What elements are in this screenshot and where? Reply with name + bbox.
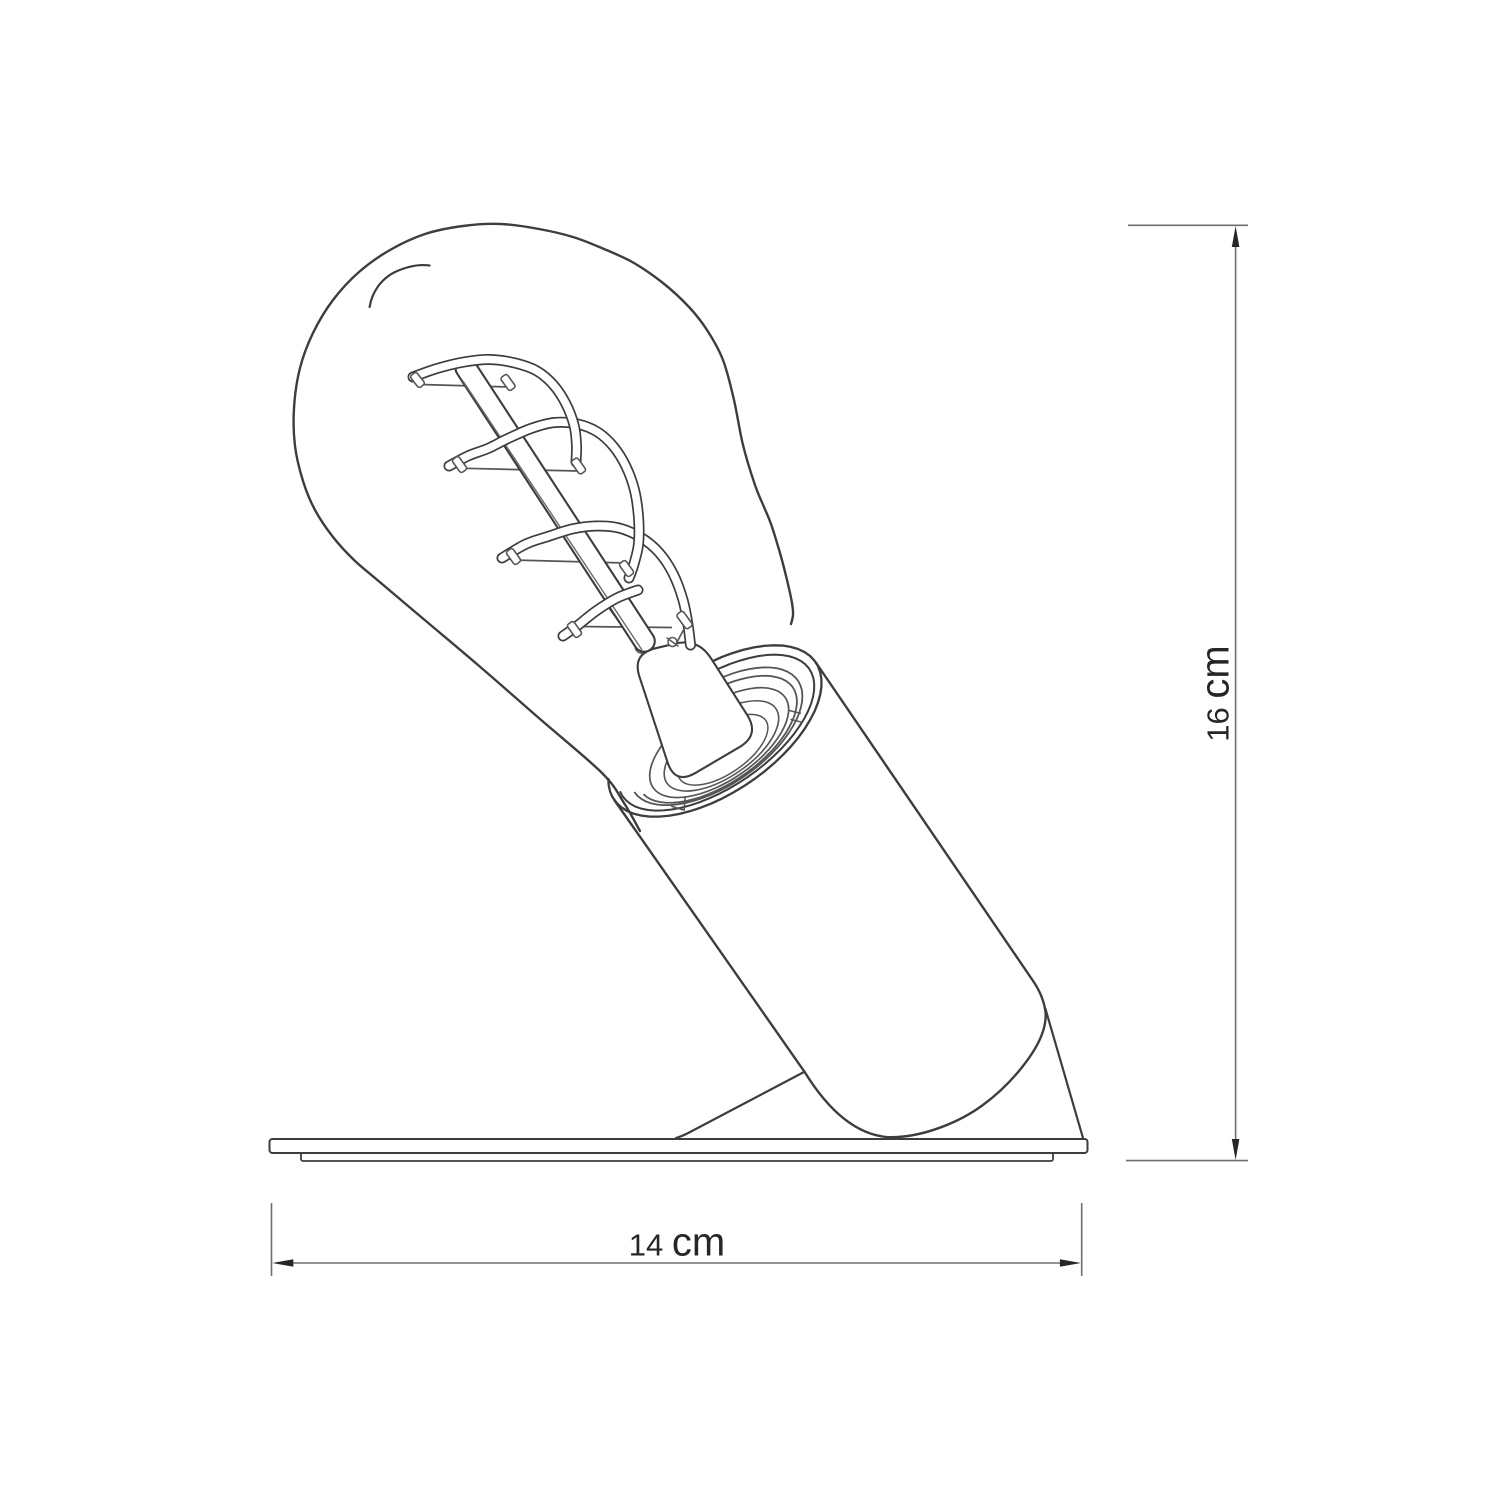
svg-text:16 cm: 16 cm xyxy=(1194,645,1238,741)
svg-text:14 cm: 14 cm xyxy=(629,1221,725,1265)
